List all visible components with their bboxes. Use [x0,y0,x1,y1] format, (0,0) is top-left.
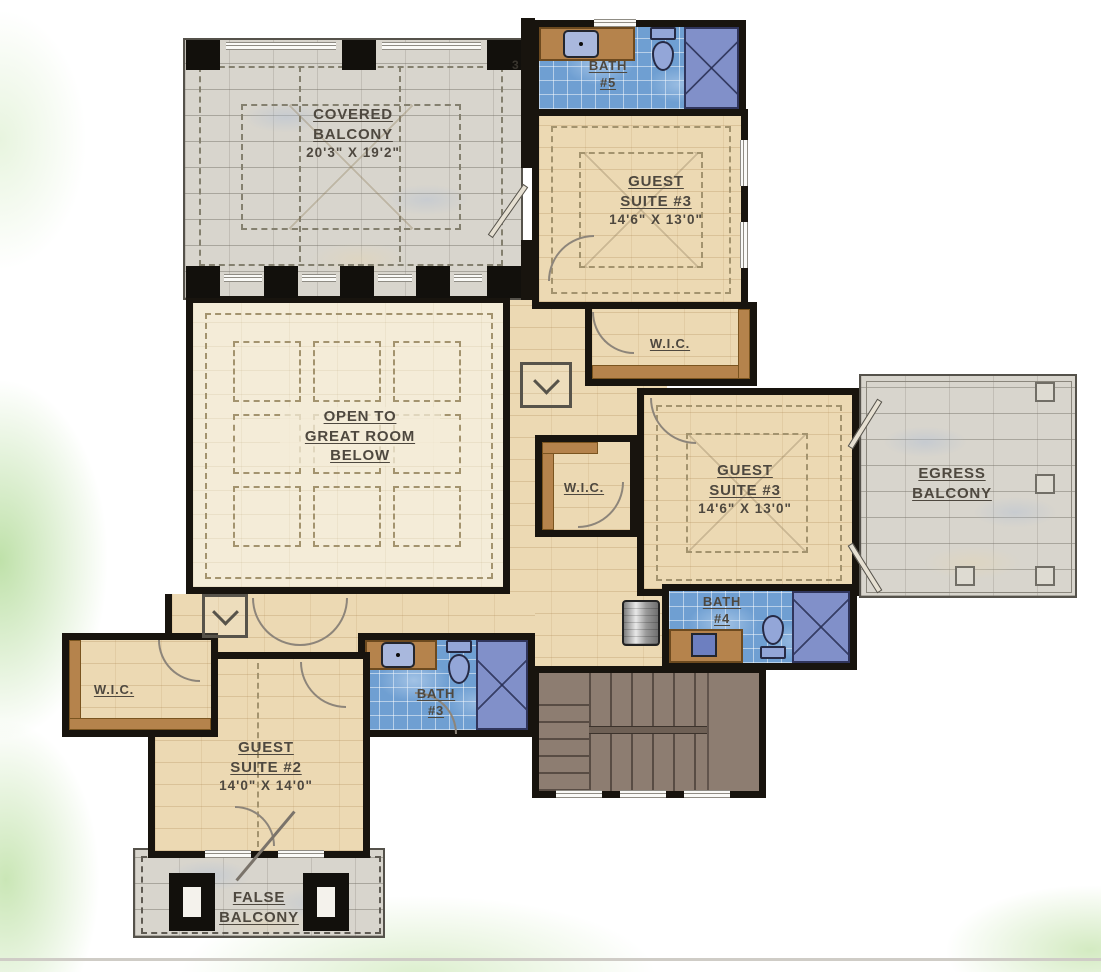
room-name: OPEN TO [324,407,397,427]
toilet [759,615,787,659]
room-name: GUEST [238,738,294,758]
sink [381,642,415,668]
balcony-railing [226,42,336,50]
toilet-bowl [762,615,784,645]
window [205,850,251,858]
detail-marker: 3 [512,58,519,72]
room-name: W.I.C. [650,336,690,353]
label-guest-suite-2: GUEST SUITE #2 14'0" X 14'0" [176,738,356,795]
toilet [649,27,677,71]
window [620,790,666,798]
room-name: W.I.C. [564,480,604,497]
room-name: BATH [417,686,455,703]
label-covered-balcony: COVERED BALCONY 20'3" X 19'2" [268,105,438,162]
room-dimensions: 14'0" X 14'0" [219,777,313,795]
closet-shelf [592,365,750,379]
balcony-pillar [487,266,521,298]
label-wic-upper: W.I.C. [630,336,710,353]
window [740,222,748,268]
coffer-cell [313,341,381,402]
closet-shelf [738,309,750,379]
balcony-railing [454,274,482,282]
label-bath-5: BATH #5 [573,58,643,92]
closet-shelf [69,718,211,730]
room-name: BATH [589,58,627,75]
room-name: BATH [703,594,741,611]
balcony-post [1035,566,1055,586]
window [594,19,636,27]
coffer-cell [233,486,301,547]
stair-flight-lower [589,734,707,791]
wall-segment [521,18,535,168]
balcony-railing [224,274,262,282]
balcony-railing [302,274,336,282]
room-dimensions: 14'6" X 13'0" [698,500,792,518]
toilet-tank [650,27,676,40]
room-name: #3 [428,703,444,720]
closet-shelf [542,442,598,454]
room-name: BELOW [330,446,390,466]
floor-plan: COVERED BALCONY 20'3" X 19'2" BATH #5 3 … [0,0,1101,972]
shower [684,27,739,109]
window [278,850,324,858]
room-name: SUITE #2 [230,758,301,778]
label-false-balcony: FALSE BALCONY [196,888,322,927]
toilet-bowl [652,41,674,71]
balcony-railing [378,274,412,282]
room-name: GUEST [628,172,684,192]
room-name: #5 [600,75,616,92]
balcony-pillar [186,40,220,70]
water-heater [622,600,660,646]
balcony-post [1035,382,1055,402]
room-name: EGRESS [918,464,985,484]
room-name: GUEST [717,461,773,481]
stair-landing [707,673,761,791]
stair-rail [589,726,707,734]
toilet-bowl [448,654,470,684]
room-covered-balcony [183,38,523,300]
label-egress-balcony: EGRESS BALCONY [882,464,1022,503]
balcony-post [1035,474,1055,494]
label-bath-4: BATH #4 [682,594,762,628]
room-name: BALCONY [219,908,299,928]
page-edge-line [0,958,1101,961]
shower [792,591,850,663]
label-wic-middle: W.I.C. [546,480,622,497]
toilet [445,640,473,684]
balcony-pillar [340,266,374,298]
attic-access-hatch [202,594,248,638]
room-name: GREAT ROOM [305,427,415,447]
room-name: BALCONY [912,484,992,504]
room-dimensions: 20'3" X 19'2" [306,144,400,162]
label-bath-3: BATH #3 [396,686,476,720]
label-open-to-great-room: OPEN TO GREAT ROOM BELOW [280,407,440,466]
room-name: SUITE #3 [620,192,691,212]
stair-flight-upper [589,673,707,726]
shower [476,640,528,730]
vanity-sink [691,633,717,657]
room-name: BALCONY [313,125,393,145]
window [556,790,602,798]
sink [563,30,599,58]
staircase [532,666,766,798]
room-dimensions: 14'6" X 13'0" [609,211,703,229]
stair-winders [539,701,589,791]
balcony-post [955,566,975,586]
room-name: #4 [714,611,730,628]
label-guest-suite-3-upper: GUEST SUITE #3 14'6" X 13'0" [566,172,746,229]
coffer-cell [233,341,301,402]
balcony-pillar [342,40,376,70]
coffer-cell [393,341,461,402]
balcony-pillar [416,266,450,298]
room-name: FALSE [233,888,285,908]
label-guest-suite-3-right: GUEST SUITE #3 14'6" X 13'0" [655,461,835,518]
balcony-railing [382,42,481,50]
toilet-tank [446,640,472,653]
room-name: W.I.C. [94,682,134,699]
coffer-cell [313,486,381,547]
wall-segment [521,240,535,300]
toilet-tank [760,646,786,659]
room-name: SUITE #3 [709,481,780,501]
room-name: COVERED [313,105,393,125]
label-wic-lower: W.I.C. [76,682,152,699]
attic-access-hatch [520,362,572,408]
window [684,790,730,798]
coffer-cell [393,486,461,547]
balcony-pillar [186,266,220,298]
balcony-pillar [264,266,298,298]
